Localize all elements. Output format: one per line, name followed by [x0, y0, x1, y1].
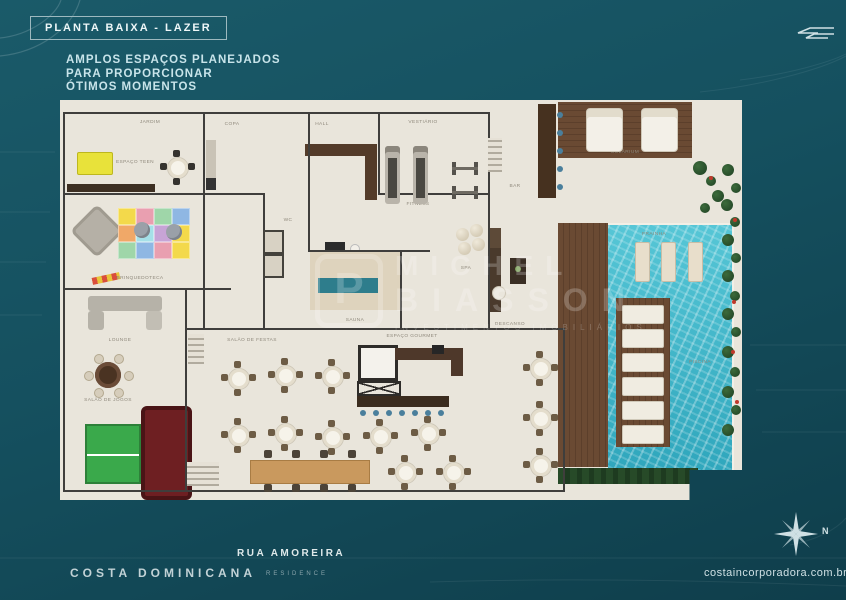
title-box: PLANTA BAIXA - LAZER	[30, 16, 227, 40]
chair	[416, 468, 423, 475]
stairs	[187, 462, 219, 486]
plant	[693, 161, 707, 175]
room-label: JARDIM	[140, 120, 160, 125]
chair	[348, 450, 356, 458]
chair	[328, 359, 335, 366]
chair	[268, 429, 275, 436]
plant	[721, 199, 733, 211]
kitchen-appliance	[432, 345, 444, 354]
headline: AMPLOS ESPAÇOS PLANEJADOS PARA PROPORCIO…	[66, 54, 281, 95]
chair	[249, 431, 256, 438]
wall	[378, 112, 380, 195]
table-top	[530, 358, 552, 380]
flower	[731, 350, 735, 354]
chair	[523, 364, 530, 371]
bar-stool	[386, 410, 392, 416]
plant	[731, 253, 741, 263]
chair	[536, 476, 543, 483]
plant	[722, 386, 734, 398]
chair	[221, 431, 228, 438]
chair	[536, 448, 543, 455]
mat-tile	[118, 242, 136, 259]
decor-sphere	[458, 242, 471, 255]
room-label: VESTIÁRIO	[408, 120, 437, 125]
table-top	[167, 157, 189, 179]
bar-stool	[412, 410, 418, 416]
chair	[348, 484, 356, 492]
plant	[722, 270, 734, 282]
flower	[732, 300, 736, 304]
chair	[320, 484, 328, 492]
pool-lounger	[661, 242, 676, 282]
room-label: SALÃO DE FESTAS	[227, 338, 277, 343]
plant	[722, 424, 734, 436]
plant	[722, 164, 734, 176]
mat-tile	[172, 208, 190, 225]
table-top	[418, 423, 440, 445]
room-label: PRAINHA	[642, 232, 666, 237]
wall	[203, 112, 205, 330]
lounge-sofa	[88, 296, 162, 311]
pool-deck	[558, 223, 608, 467]
table-top	[530, 408, 552, 430]
folding-table	[357, 381, 401, 396]
yellow-sofa	[77, 152, 113, 175]
gym-machine	[452, 186, 478, 199]
chair	[449, 455, 456, 462]
bar-stool	[557, 184, 563, 190]
room-label: SAUNA	[346, 318, 365, 323]
pool-bar-counter	[538, 104, 556, 198]
page-title: PLANTA BAIXA - LAZER	[45, 22, 212, 34]
chair	[328, 420, 335, 427]
chair	[173, 178, 180, 185]
plant	[722, 308, 734, 320]
pool-lounger	[688, 242, 703, 282]
deck-lounger	[622, 377, 664, 396]
chair	[551, 461, 558, 468]
chair	[234, 389, 241, 396]
wall	[63, 112, 489, 114]
mat-tile	[172, 242, 190, 259]
room-label: COPA	[225, 122, 240, 127]
daybed	[641, 108, 678, 152]
bar-stool	[425, 410, 431, 416]
bar-stool	[399, 410, 405, 416]
chair	[94, 354, 104, 364]
chair	[320, 450, 328, 458]
room-label: SALÃO DE JOGOS	[84, 398, 132, 403]
decor-sphere	[456, 228, 469, 241]
chair	[160, 163, 167, 170]
flower	[709, 176, 713, 180]
brand-suffix: RESIDENCE	[266, 571, 328, 577]
room-label: ESPAÇO TEEN	[116, 160, 154, 165]
plant	[731, 183, 741, 193]
brand-glyph-icon	[788, 22, 836, 44]
pool-lounger	[635, 242, 650, 282]
table-top	[322, 427, 344, 449]
gourmet-counter-return	[365, 144, 377, 200]
room-label: WC	[284, 218, 293, 223]
chair	[264, 450, 272, 458]
chair	[296, 429, 303, 436]
compass-rose-icon	[772, 510, 820, 558]
bar-counter	[357, 396, 449, 407]
chair	[292, 450, 300, 458]
wall	[310, 250, 430, 252]
bar-stool	[557, 166, 563, 172]
chair	[376, 419, 383, 426]
bar-stool	[557, 112, 563, 118]
chair	[536, 429, 543, 436]
table-top	[228, 425, 250, 447]
stairs	[188, 334, 204, 364]
chair	[221, 374, 228, 381]
room-label: PISCINA	[689, 360, 711, 365]
wall	[63, 112, 65, 492]
chair	[464, 468, 471, 475]
chair	[523, 414, 530, 421]
chair	[234, 446, 241, 453]
chair	[411, 429, 418, 436]
stairs	[488, 138, 502, 172]
plant	[731, 327, 741, 337]
bar-stool	[438, 410, 444, 416]
chair	[296, 371, 303, 378]
table-top	[275, 423, 297, 445]
room-label: HALL	[315, 122, 329, 127]
mat-tile	[154, 242, 172, 259]
play-tent	[70, 204, 124, 258]
wall	[563, 328, 565, 492]
street-label: RUA AMOREIRA	[237, 548, 345, 559]
chair	[376, 447, 383, 454]
chair	[281, 444, 288, 451]
plant	[712, 190, 724, 202]
chair	[315, 433, 322, 440]
chair	[436, 468, 443, 475]
plant	[700, 203, 710, 213]
room-label: SPA	[461, 266, 471, 271]
deck-lounger	[622, 329, 664, 348]
plant	[722, 234, 734, 246]
bar-stool	[557, 130, 563, 136]
wall	[400, 250, 402, 330]
stage	[358, 345, 398, 381]
chair	[281, 416, 288, 423]
chair	[424, 416, 431, 423]
room-label: DESCANSO	[495, 322, 525, 327]
chair	[315, 372, 322, 379]
treadmill	[413, 146, 428, 204]
table-top	[228, 368, 250, 390]
deck-lounger	[622, 425, 664, 444]
sculpture	[492, 286, 506, 300]
mat-tile	[118, 208, 136, 225]
table-top	[395, 462, 417, 484]
pouf	[166, 224, 182, 240]
treadmill	[385, 146, 400, 204]
chair	[401, 455, 408, 462]
game-table-top	[95, 362, 121, 388]
plant	[730, 367, 740, 377]
deck-lounger	[622, 401, 664, 420]
wall	[63, 288, 231, 290]
elevator	[263, 230, 284, 254]
chair	[124, 371, 134, 381]
chair	[268, 371, 275, 378]
chair	[281, 386, 288, 393]
brand-logo: COSTA DOMINICANARESIDENCE	[70, 566, 328, 580]
room-label: ESPAÇO GOURMET	[386, 334, 437, 339]
deck-lounger	[622, 305, 664, 324]
chair	[391, 432, 398, 439]
chair	[439, 429, 446, 436]
kitchen-counter-return	[451, 348, 463, 376]
floor-plan: P MICHEL BIASSON INVESTIMENTOS IMOBILIÁR…	[60, 100, 742, 500]
chair	[551, 414, 558, 421]
hedge	[558, 468, 698, 484]
table-top	[275, 365, 297, 387]
table-top	[370, 426, 392, 448]
wall	[203, 193, 265, 195]
sauna-bench	[318, 278, 378, 293]
chair	[328, 448, 335, 455]
flower	[735, 400, 739, 404]
room-label: LOUNGE	[109, 338, 132, 343]
chair	[343, 372, 350, 379]
table-top	[530, 455, 552, 477]
wall	[63, 490, 565, 492]
chair	[363, 432, 370, 439]
chair	[114, 354, 124, 364]
chair	[281, 358, 288, 365]
chair	[536, 379, 543, 386]
lounge-armchair	[146, 311, 162, 330]
wall	[63, 193, 203, 195]
chair	[523, 461, 530, 468]
chair	[536, 351, 543, 358]
plant	[731, 405, 741, 415]
bar-stool	[373, 410, 379, 416]
chair	[551, 364, 558, 371]
chair	[328, 387, 335, 394]
chair	[424, 444, 431, 451]
daybed	[586, 108, 623, 152]
website-url: costaincorporadora.com.br	[704, 567, 846, 579]
table-top	[322, 366, 344, 388]
elevator	[263, 254, 284, 278]
chair	[264, 484, 272, 492]
wall	[308, 112, 310, 252]
mat-tile	[154, 208, 172, 225]
chair	[249, 374, 256, 381]
gym-machine	[452, 162, 478, 175]
ping-pong-table	[85, 424, 141, 484]
chair	[188, 163, 195, 170]
table-top	[443, 462, 465, 484]
bar-stool	[360, 410, 366, 416]
chair	[401, 483, 408, 490]
chair	[84, 371, 94, 381]
decor-sphere	[472, 238, 485, 251]
chair	[343, 433, 350, 440]
pouf	[134, 222, 150, 238]
compass-north-label: N	[822, 526, 829, 536]
room-label: BRINQUEDOTECA	[116, 276, 163, 281]
compass: N	[772, 510, 820, 563]
bar-stool	[557, 148, 563, 154]
chair	[234, 418, 241, 425]
lounge-sofa-arm	[88, 311, 104, 330]
chair	[388, 468, 395, 475]
wall	[185, 328, 565, 330]
brand-name: COSTA DOMINICANA	[70, 566, 256, 580]
deck-lounger	[622, 353, 664, 372]
chair	[292, 484, 300, 492]
chair	[536, 401, 543, 408]
banquet-table	[250, 460, 370, 484]
flower	[733, 218, 737, 222]
room-label: BAR	[509, 184, 520, 189]
mat-tile	[136, 242, 154, 259]
chair	[173, 150, 180, 157]
decor-sphere	[470, 224, 483, 237]
chair	[449, 483, 456, 490]
sideboard	[67, 184, 155, 192]
chair	[234, 361, 241, 368]
copa-appliance	[206, 178, 216, 190]
decor-niche	[510, 258, 526, 284]
